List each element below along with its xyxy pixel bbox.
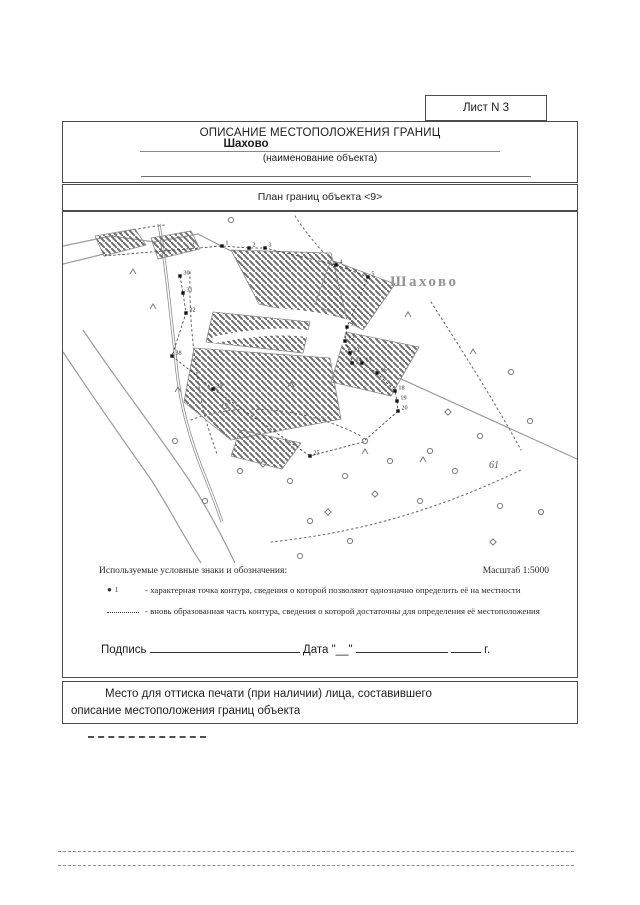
legend-item-point: ●1 - характерная точка контура, сведения…: [107, 584, 577, 597]
svg-text:1: 1: [225, 239, 228, 246]
svg-text:39: 39: [216, 382, 222, 389]
svg-text:32: 32: [189, 306, 195, 313]
sheet-number-label: Лист N 3: [463, 102, 509, 114]
svg-text:30: 30: [183, 269, 189, 276]
svg-text:16: 16: [380, 366, 386, 373]
svg-text:9: 9: [350, 320, 353, 327]
underline-segment: [140, 140, 218, 152]
signature-label: Подпись: [101, 644, 147, 656]
svg-text:25: 25: [313, 449, 319, 456]
svg-text:12: 12: [348, 334, 354, 341]
page-break-dashed-line: [58, 851, 574, 852]
short-dashed-line: [88, 736, 206, 738]
legend-item-contour: - вновь образованная часть контура, свед…: [107, 605, 577, 618]
object-name: Шахово: [218, 138, 273, 152]
svg-text:38: 38: [175, 349, 181, 356]
boundary-plan-map: 1234591213141516181920253031323839Шахово…: [63, 212, 577, 564]
svg-text:3: 3: [268, 241, 271, 248]
svg-text:61: 61: [489, 460, 499, 471]
svg-text:Шахово: Шахово: [390, 274, 459, 290]
object-name-row: Шахово: [63, 139, 577, 152]
legend-item-text: - вновь образованная часть контура, свед…: [145, 605, 540, 618]
date-year-blank: [451, 642, 481, 653]
object-name-caption: (наименование объекта): [63, 153, 577, 164]
document-title: ОПИСАНИЕ МЕСТОПОЛОЖЕНИЯ ГРАНИЦ: [63, 127, 577, 139]
date-day-blank: "__": [332, 644, 353, 656]
legend-item-text: - характерная точка контура, сведения о …: [145, 584, 520, 597]
year-suffix: г.: [484, 644, 490, 656]
signature-row: Подпись Дата "__" г.: [101, 642, 490, 656]
sheet-number-box: Лист N 3: [425, 95, 547, 121]
legend-heading-row: Используемые условные знаки и обозначени…: [63, 566, 577, 576]
map-scale-label: Масштаб 1:5000: [483, 566, 549, 576]
stamp-note-box: Место для оттиска печати (при наличии) л…: [62, 681, 578, 724]
svg-text:19: 19: [400, 394, 406, 401]
svg-text:4: 4: [339, 258, 342, 265]
document-page: Лист N 3 ОПИСАНИЕ МЕСТОПОЛОЖЕНИЯ ГРАНИЦ …: [0, 0, 640, 905]
underline-segment: [274, 140, 500, 152]
dotted-line-icon: [107, 605, 145, 618]
svg-text:18: 18: [398, 384, 404, 391]
svg-text:20: 20: [401, 404, 407, 411]
svg-text:31: 31: [186, 286, 192, 293]
point-marker-icon: ●1: [107, 584, 145, 597]
svg-text:15: 15: [365, 356, 371, 363]
map-section: 1234591213141516181920253031323839Шахово…: [62, 211, 578, 678]
title-section: ОПИСАНИЕ МЕСТОПОЛОЖЕНИЯ ГРАНИЦ Шахово (н…: [62, 121, 578, 183]
blank-line: [141, 176, 531, 177]
stamp-note-text: Место для оттиска печати (при наличии) л…: [71, 686, 473, 719]
svg-text:5: 5: [371, 270, 374, 277]
plan-title-box: План границ объекта <9>: [62, 184, 578, 211]
date-label: Дата: [303, 644, 328, 656]
signature-blank: [150, 642, 300, 653]
svg-text:13: 13: [353, 346, 359, 353]
date-month-blank: [356, 642, 448, 653]
page-break-dashed-line: [58, 865, 574, 866]
plan-title: План границ объекта <9>: [258, 191, 383, 203]
legend-heading: Используемые условные знаки и обозначени…: [99, 566, 287, 576]
svg-text:2: 2: [252, 241, 255, 248]
